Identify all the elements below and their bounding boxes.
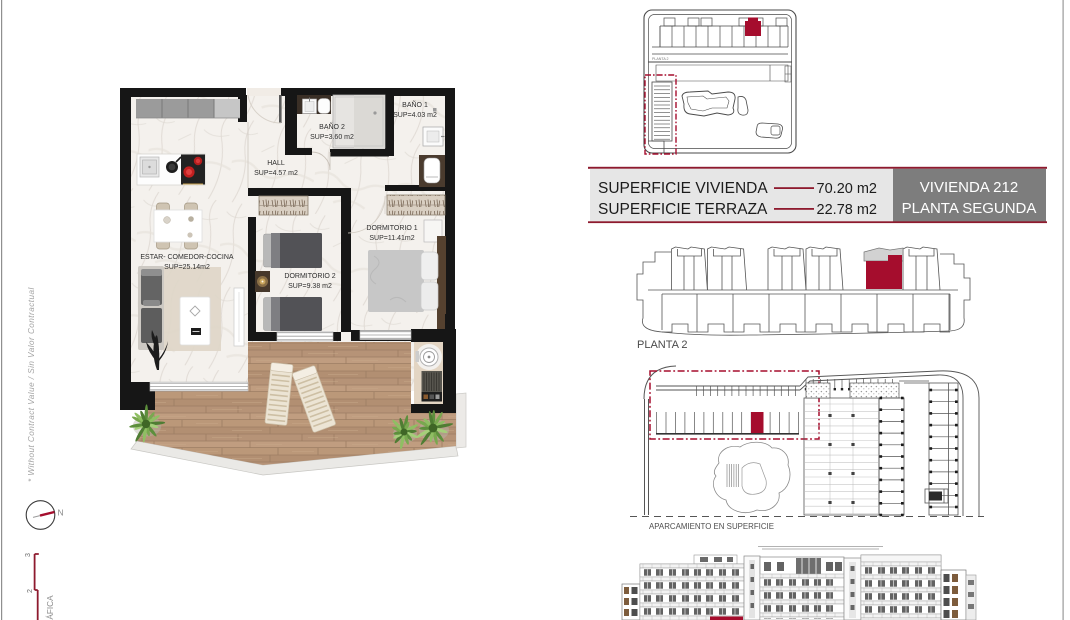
svg-text:* Without Contract Value / Sin: * Without Contract Value / Sin Valor Con…	[27, 287, 36, 482]
svg-text:3: 3	[23, 553, 32, 557]
svg-text:ESTAR- COMEDOR-COCINA: ESTAR- COMEDOR-COCINA	[140, 254, 234, 261]
svg-text:SUP=4.57 m2: SUP=4.57 m2	[254, 170, 298, 177]
svg-text:DORMITORIO 1: DORMITORIO 1	[366, 225, 417, 232]
svg-text:22.78 m2: 22.78 m2	[817, 202, 877, 218]
svg-text:2: 2	[25, 589, 34, 593]
svg-text:PLANTA SEGUNDA: PLANTA SEGUNDA	[902, 200, 1037, 217]
svg-text:BAÑO 2: BAÑO 2	[319, 122, 345, 131]
svg-text:SUP=9.38 m2: SUP=9.38 m2	[288, 283, 332, 290]
svg-text:PLANTA 2: PLANTA 2	[637, 339, 688, 351]
svg-text:PLANTA 2: PLANTA 2	[652, 57, 669, 61]
svg-text:APARCAMIENTO EN SUPERFICIE: APARCAMIENTO EN SUPERFICIE	[649, 521, 774, 531]
svg-text:BAÑO 1: BAÑO 1	[402, 100, 428, 109]
svg-text:SUPERFICIE VIVIENDA: SUPERFICIE VIVIENDA	[598, 180, 768, 197]
svg-text:SUP=11.41m2: SUP=11.41m2	[369, 235, 414, 242]
svg-text:ESCALA GRÁFICA: ESCALA GRÁFICA	[45, 595, 55, 620]
svg-text:DORMITORIO 2: DORMITORIO 2	[284, 273, 335, 280]
svg-text:SUPERFICIE TERRAZA: SUPERFICIE TERRAZA	[598, 201, 768, 218]
svg-text:HALL: HALL	[267, 160, 285, 167]
svg-text:70.20 m2: 70.20 m2	[817, 181, 877, 197]
svg-text:N: N	[58, 508, 64, 518]
svg-text:SUP=25.14m2: SUP=25.14m2	[164, 264, 210, 271]
svg-text:VIVIENDA 212: VIVIENDA 212	[920, 179, 1018, 196]
svg-text:SUP=3.60 m2: SUP=3.60 m2	[310, 134, 354, 141]
svg-text:SUP=4.03 m2: SUP=4.03 m2	[393, 112, 437, 119]
